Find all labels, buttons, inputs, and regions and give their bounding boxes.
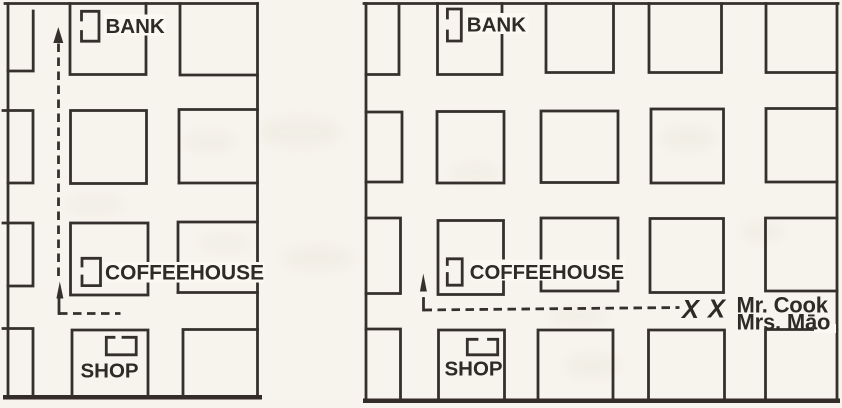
svg-text:SHOP: SHOP bbox=[81, 360, 139, 383]
svg-text:SHOP: SHOP bbox=[445, 358, 503, 381]
svg-text:COFFEEHOUSE: COFFEEHOUSE bbox=[105, 262, 264, 285]
svg-text:X: X bbox=[706, 295, 727, 323]
svg-text:COFFEEHOUSE: COFFEEHOUSE bbox=[470, 262, 624, 284]
svg-text:BANK: BANK bbox=[106, 15, 165, 38]
svg-text:BANK: BANK bbox=[467, 14, 526, 37]
svg-text:Mrs. Māo: Mrs. Māo bbox=[737, 310, 831, 335]
svg-text:X: X bbox=[680, 296, 701, 324]
